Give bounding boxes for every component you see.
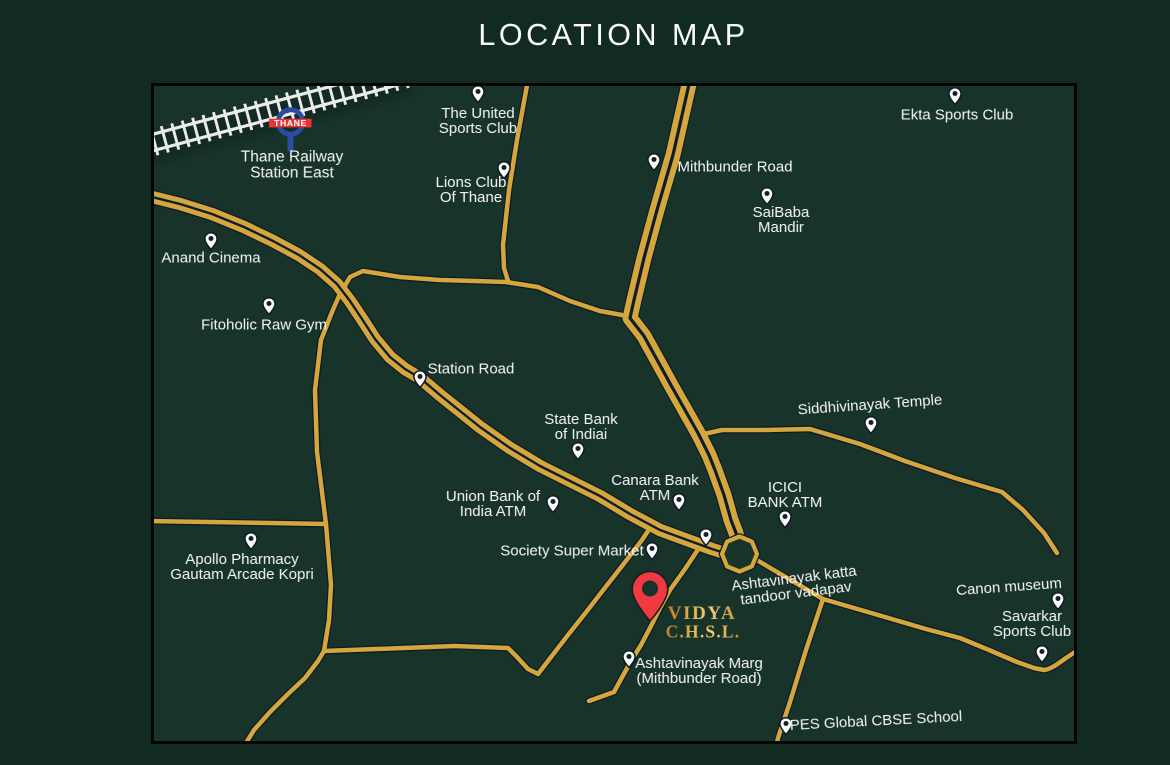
svg-text:THANE: THANE	[274, 118, 307, 128]
